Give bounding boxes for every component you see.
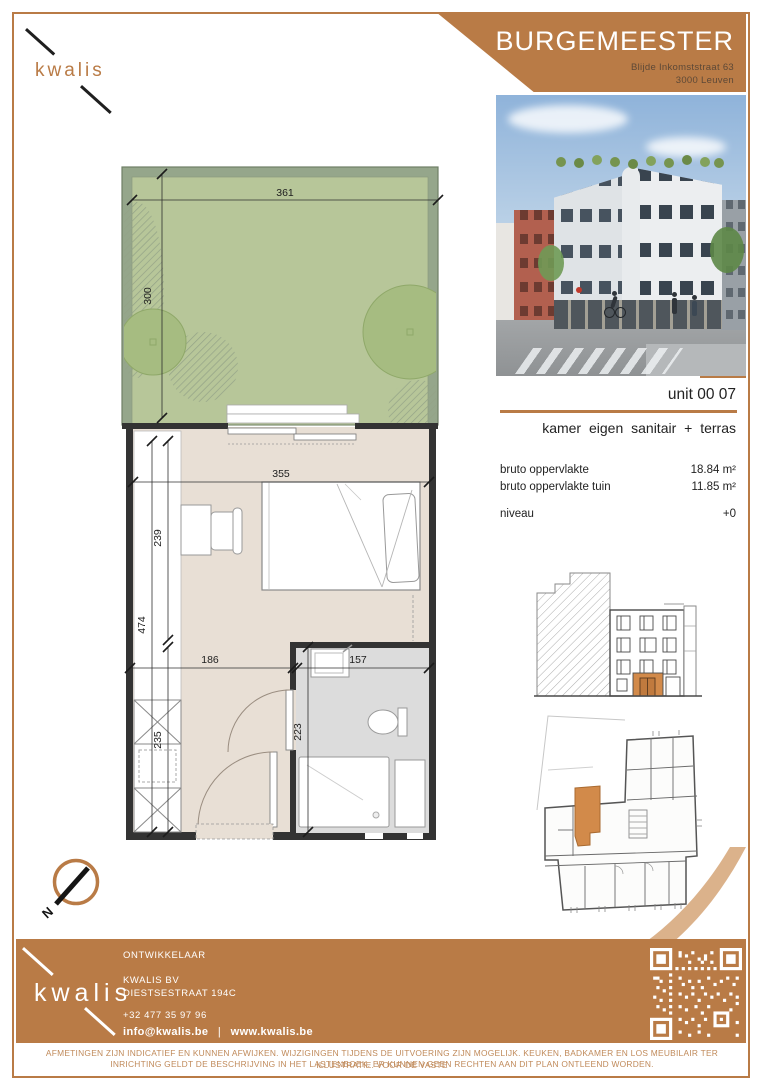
project-photo bbox=[496, 95, 746, 376]
desk-chair bbox=[211, 508, 242, 554]
dim-label-bath-width: 157 bbox=[349, 654, 367, 666]
toilet bbox=[368, 708, 407, 736]
footer-logo-text: kwalis bbox=[34, 979, 132, 1008]
company-phone: +32 477 35 97 96 bbox=[123, 1010, 207, 1021]
dim-label-bath-depth: 223 bbox=[292, 723, 304, 741]
elevation-drawing bbox=[532, 556, 747, 704]
photo-roof-greenery bbox=[556, 157, 566, 167]
elevation-door bbox=[666, 677, 680, 696]
photo-small-building bbox=[496, 223, 516, 320]
photo-bike-wheel bbox=[615, 307, 626, 318]
desk bbox=[181, 505, 211, 555]
wardrobe bbox=[134, 700, 181, 832]
level-label: niveau bbox=[500, 506, 534, 523]
logo-slash-top-icon bbox=[25, 28, 55, 55]
qr-code bbox=[650, 948, 742, 1040]
level-value: +0 bbox=[723, 506, 736, 523]
unit-description: kamer eigen sanitair + terras bbox=[500, 420, 736, 436]
adjacent-building bbox=[537, 573, 610, 696]
project-address-line1: Blijde Inkomststraat 63 bbox=[631, 62, 734, 73]
photo-stop-sign bbox=[576, 287, 582, 293]
photo-person-head bbox=[672, 292, 677, 297]
entrance-threshold bbox=[196, 824, 273, 839]
spec-value: 18.84 m² bbox=[691, 462, 736, 479]
photo-tree-left bbox=[538, 245, 564, 281]
footer-email-link[interactable]: info@kwalis.be bbox=[123, 1026, 208, 1038]
north-label: N bbox=[39, 904, 56, 921]
footer-banner: kwalis ONTWIKKELAAR KWALIS BV DIESTSESTR… bbox=[16, 939, 746, 1043]
elevation-unit-highlight bbox=[633, 673, 663, 696]
shower bbox=[299, 757, 389, 827]
brochure-page: kwalis BURGEMEESTER Blijde Inkomststraat… bbox=[0, 0, 764, 1080]
logo-slash-bottom-icon bbox=[80, 85, 111, 114]
unit-number: unit 00 07 bbox=[500, 386, 736, 404]
company-name: KWALIS BV bbox=[123, 975, 179, 986]
footer-separator: | bbox=[212, 1026, 227, 1038]
level-row: niveau +0 bbox=[500, 506, 736, 523]
footer-logo-slash-top-icon bbox=[22, 947, 53, 976]
photo-person-head bbox=[692, 295, 697, 300]
developer-heading: ONTWIKKELAAR bbox=[123, 950, 206, 961]
spec-value: 11.85 m² bbox=[691, 479, 736, 496]
photo-tree-right bbox=[710, 227, 744, 273]
project-title: BURGEMEESTER bbox=[495, 26, 734, 57]
pillow bbox=[383, 493, 420, 583]
spec-label: bruto oppervlakte tuin bbox=[500, 479, 611, 496]
tree bbox=[120, 309, 186, 375]
footer-website-link[interactable]: www.kwalis.be bbox=[231, 1026, 313, 1038]
sink bbox=[311, 645, 352, 677]
dim-label-room-width: 355 bbox=[272, 468, 290, 480]
photo-person bbox=[672, 298, 677, 314]
photo-cloud bbox=[646, 137, 726, 157]
elevation-window-ground bbox=[617, 679, 627, 691]
dim-label-terrace-depth: 300 bbox=[142, 287, 154, 305]
floorplan-drawing: 361 300 355 239 474 235 186 157 223 bbox=[115, 160, 445, 860]
dim-label-terrace-width: 361 bbox=[276, 187, 294, 199]
unit-specs: bruto oppervlakte 18.84 m² bruto oppervl… bbox=[500, 462, 736, 496]
photo-person bbox=[692, 301, 697, 316]
desk-counter bbox=[134, 431, 181, 700]
photo-cloud bbox=[508, 105, 628, 133]
spec-label: bruto oppervlakte bbox=[500, 462, 589, 479]
photo-bike-wheel bbox=[604, 307, 615, 318]
north-compass-icon: N bbox=[36, 852, 112, 932]
dim-label-hall-width: 186 bbox=[201, 654, 219, 666]
bed bbox=[262, 482, 420, 590]
facade-windows bbox=[617, 616, 676, 674]
photo-crosswalk bbox=[515, 348, 683, 374]
sliding-door bbox=[227, 405, 359, 423]
project-address-line2: 3000 Leuven bbox=[676, 75, 734, 86]
dim-label-wardrobe-zone: 235 bbox=[152, 731, 164, 749]
kwalis-logo: kwalis bbox=[24, 24, 128, 128]
spec-row: bruto oppervlakte tuin 11.85 m² bbox=[500, 479, 736, 496]
spec-row: bruto oppervlakte 18.84 m² bbox=[500, 462, 736, 479]
disclaimer-line2: INRICHTING GELDT DE BESCHRIJVING IN HET … bbox=[16, 1059, 748, 1071]
unit-divider bbox=[500, 410, 737, 413]
company-street: DIESTSESTRAAT 194C bbox=[123, 988, 236, 999]
logo-text: kwalis bbox=[35, 60, 105, 82]
terrace-garden bbox=[115, 167, 445, 440]
bathroom-cabinet bbox=[395, 760, 425, 827]
footer-logo-slash-bottom-icon bbox=[84, 1007, 115, 1036]
dim-label-desk-zone: 239 bbox=[152, 529, 164, 547]
footer-contact-row: info@kwalis.be | www.kwalis.be bbox=[123, 1026, 313, 1038]
dim-label-room-depth: 474 bbox=[136, 616, 148, 634]
